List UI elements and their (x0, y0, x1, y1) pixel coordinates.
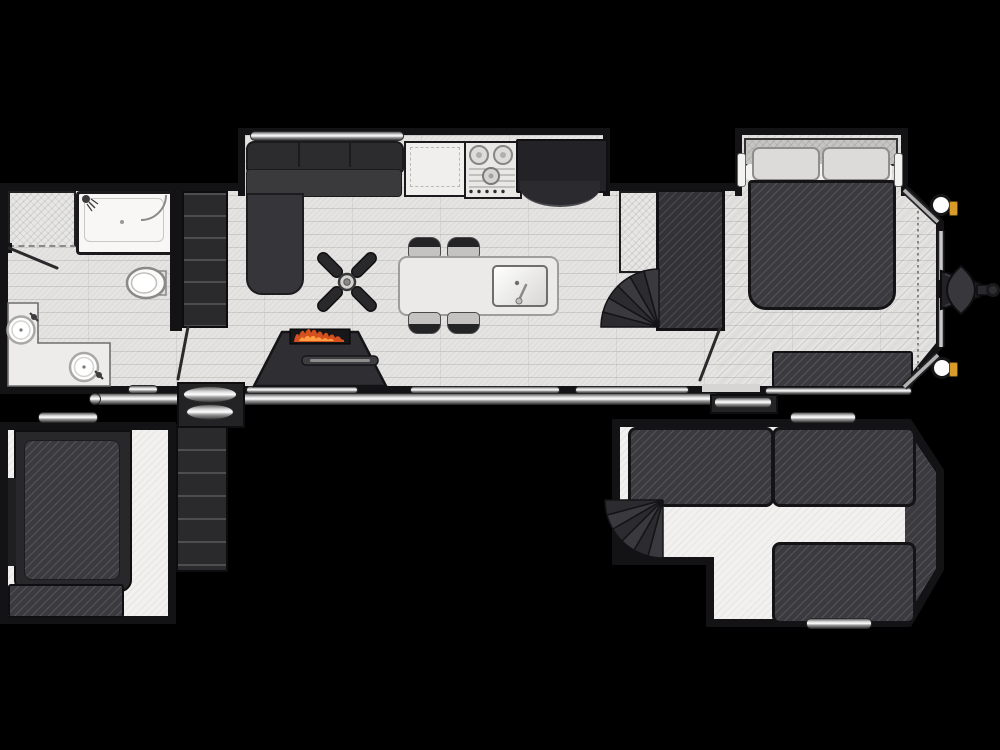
bed-pillow (752, 147, 820, 181)
sofa-cushion-divider (298, 143, 300, 167)
body-trim (410, 386, 560, 394)
rear-loft-storage-bench (8, 584, 124, 618)
front-entry-threshold (702, 384, 760, 392)
floor-plan-stage (0, 0, 1000, 750)
linen-closet (8, 191, 76, 247)
island-sink (492, 265, 548, 307)
dresser-bench (772, 351, 913, 388)
body-trim (128, 385, 158, 394)
front-loft-mattress-bottom (772, 542, 916, 624)
bed-pillow (822, 147, 890, 181)
rear-entry-step (186, 404, 234, 420)
front-loft-grab-handle-top (790, 412, 856, 423)
bar-stool (408, 312, 441, 334)
rear-loft-bed-rail (8, 478, 16, 566)
bath-door-wall-stub (0, 243, 12, 253)
bed-slide-handle (737, 153, 746, 187)
front-entry-step (714, 397, 772, 408)
hall-wardrobe (656, 189, 725, 331)
sofa-slide-awning-rail (250, 131, 404, 141)
awning-rail-cap (89, 393, 101, 405)
bathroom-divider-wall (170, 191, 182, 331)
rear-loft-bed-mattress (24, 440, 120, 580)
front-loft-mattress-right (772, 427, 916, 507)
pantry-cabinet (619, 191, 659, 273)
sofa-chaise (246, 193, 304, 295)
body-trim (575, 386, 689, 394)
hitch-coupler (947, 266, 975, 314)
front-loft-mattress-left (628, 427, 774, 507)
rear-loft-access-steps (176, 424, 228, 572)
front-loft-grab-handle-bottom (806, 618, 872, 629)
shower-pan-line (84, 198, 164, 242)
rear-loft-steps-main (182, 191, 228, 328)
body-trim (765, 387, 912, 395)
sofa-cushion-divider (349, 143, 351, 167)
marker-light (949, 201, 958, 216)
body-trim (246, 386, 358, 394)
bed-slide-handle (894, 153, 903, 187)
marker-light (949, 362, 958, 377)
range-cooktop (464, 141, 522, 199)
bar-stool (447, 312, 480, 334)
a-frame-hitch (941, 266, 999, 314)
hitch-ring (988, 285, 999, 296)
rear-loft-grab-handle (38, 412, 98, 423)
queen-bed-mattress (748, 180, 896, 310)
rear-entry-step (183, 386, 237, 403)
kitchen-counter-inner-line (410, 147, 460, 187)
